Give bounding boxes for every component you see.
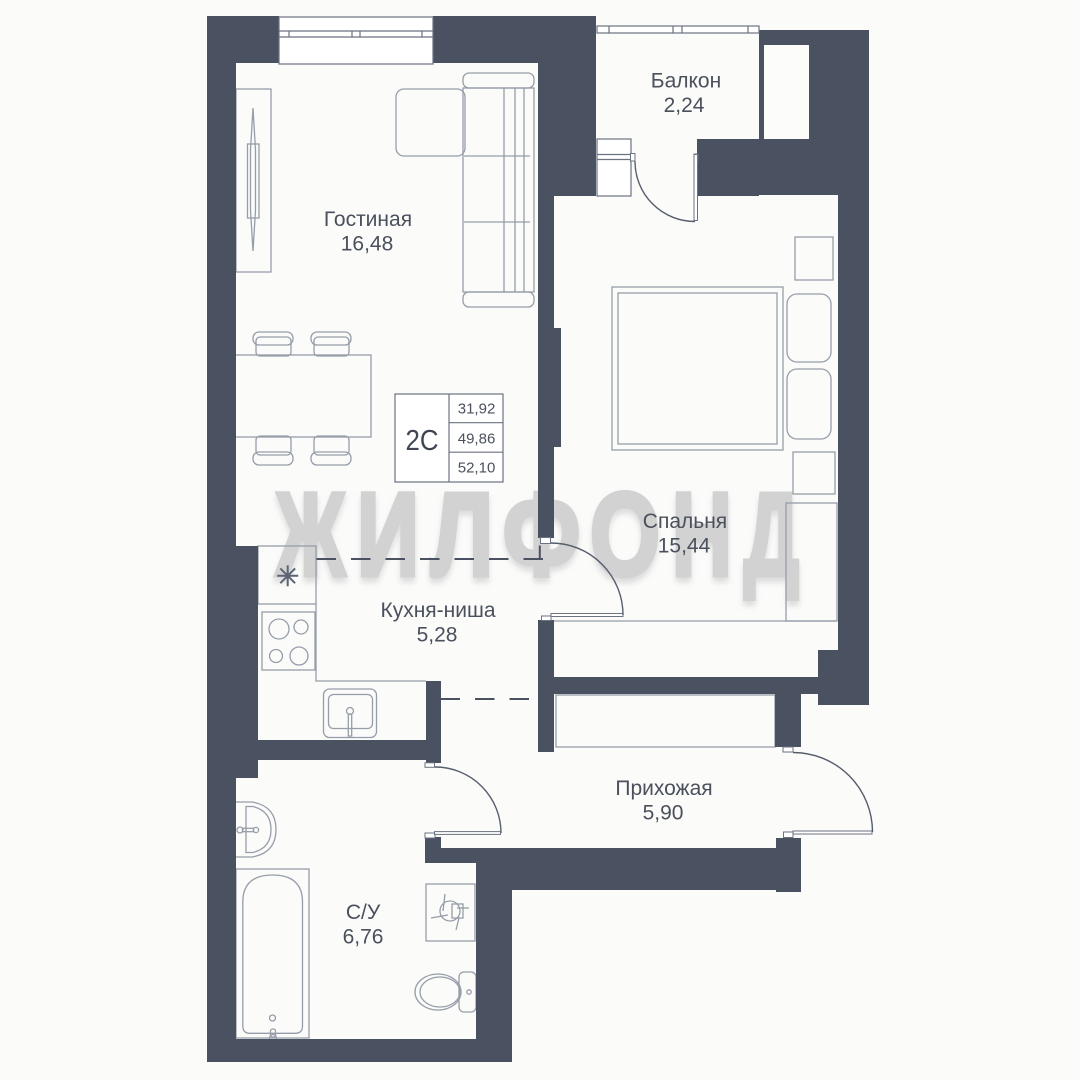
svg-text:2С: 2С bbox=[406, 425, 439, 457]
svg-text:16,48: 16,48 bbox=[341, 233, 394, 256]
svg-text:6,76: 6,76 bbox=[343, 926, 384, 949]
svg-text:Прихожая: Прихожая bbox=[615, 777, 712, 800]
svg-text:О: О bbox=[590, 469, 660, 601]
svg-text:Д: Д bbox=[744, 469, 799, 601]
svg-text:Кухня-ниша: Кухня-ниша bbox=[380, 599, 495, 622]
svg-text:Ж: Ж bbox=[275, 469, 346, 601]
svg-text:Гостиная: Гостиная bbox=[324, 208, 412, 231]
svg-text:15,44: 15,44 bbox=[658, 535, 711, 558]
svg-text:2,24: 2,24 bbox=[664, 94, 705, 117]
svg-text:52,10: 52,10 bbox=[458, 460, 496, 477]
svg-text:Л: Л bbox=[431, 469, 493, 601]
svg-text:31,92: 31,92 bbox=[458, 401, 496, 418]
svg-text:5,90: 5,90 bbox=[643, 802, 684, 825]
svg-text:И: И bbox=[357, 469, 419, 601]
svg-text:5,28: 5,28 bbox=[417, 624, 458, 647]
svg-text:49,86: 49,86 bbox=[458, 431, 496, 448]
svg-text:Спальня: Спальня bbox=[643, 510, 727, 533]
svg-text:Балкон: Балкон bbox=[651, 70, 721, 93]
svg-text:С/У: С/У bbox=[346, 901, 381, 924]
